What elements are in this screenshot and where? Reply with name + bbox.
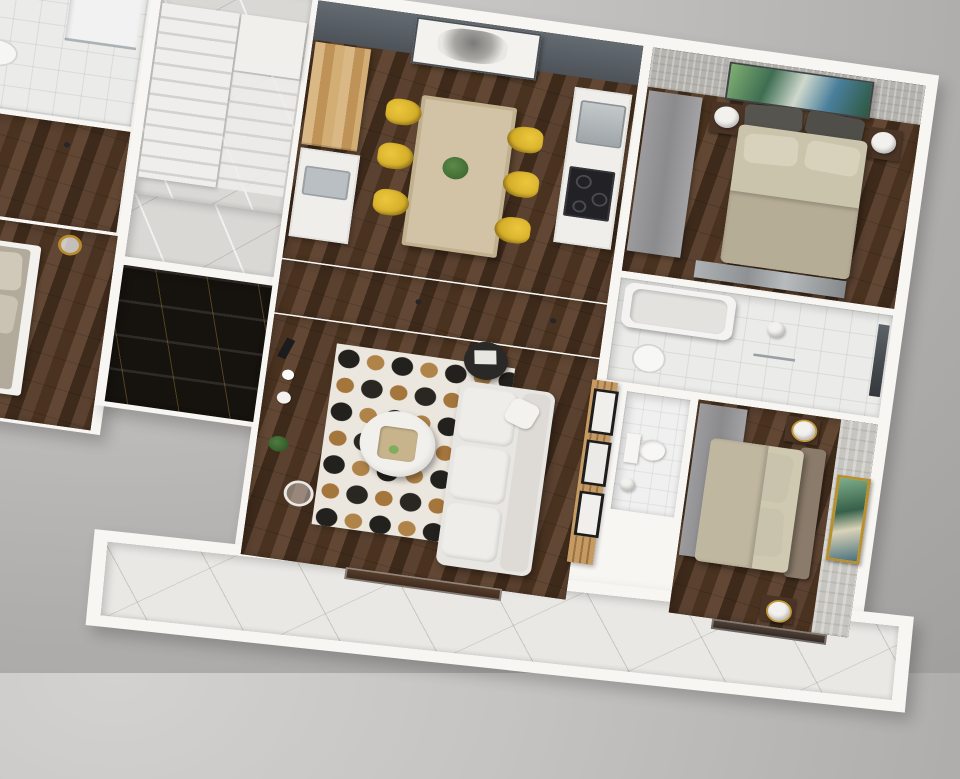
neighbor-bed-pillow-1: [0, 251, 23, 291]
staircase-landing: [234, 14, 307, 79]
sofa-cushion-2: [448, 444, 511, 506]
coffee-table-tray: [376, 425, 418, 463]
kitchen-cooktop: [563, 166, 615, 222]
kitchen-sink-left: [301, 165, 351, 200]
stairwell-void-floor: [105, 265, 273, 422]
floorplan-scene: [0, 0, 960, 779]
side-table-paper: [474, 350, 496, 364]
bedroom1-pillow-left: [743, 133, 799, 167]
sofa-cushion-3: [440, 501, 503, 563]
kitchen-sink-right: [575, 100, 627, 149]
